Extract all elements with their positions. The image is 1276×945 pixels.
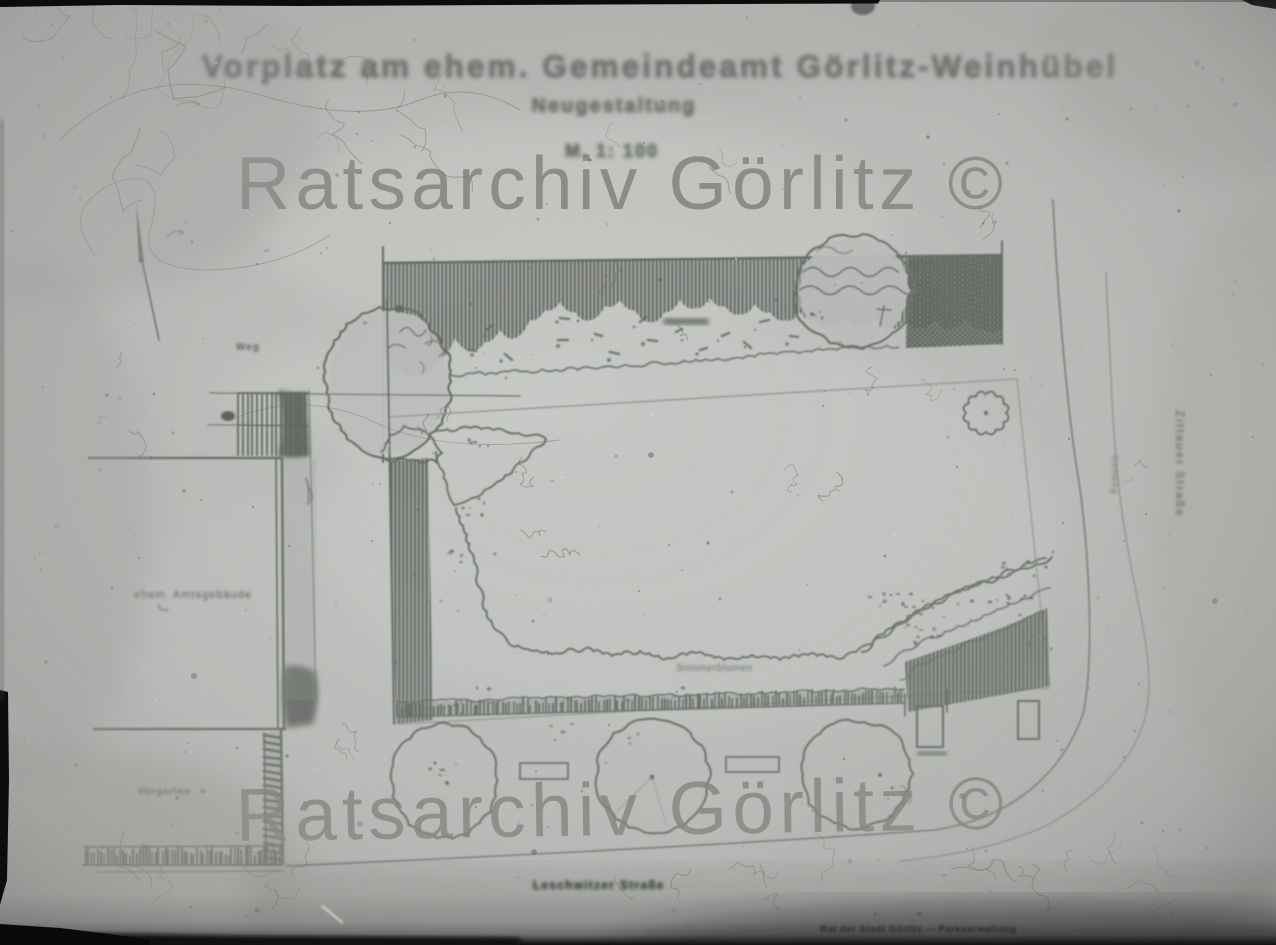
svg-text:Rat der Stadt Görlitz — Park: Rat der Stadt Görlitz — Parkverwaltung	[820, 924, 1016, 935]
svg-text:Leschwitzer Straße: Leschwitzer Straße	[533, 880, 665, 892]
